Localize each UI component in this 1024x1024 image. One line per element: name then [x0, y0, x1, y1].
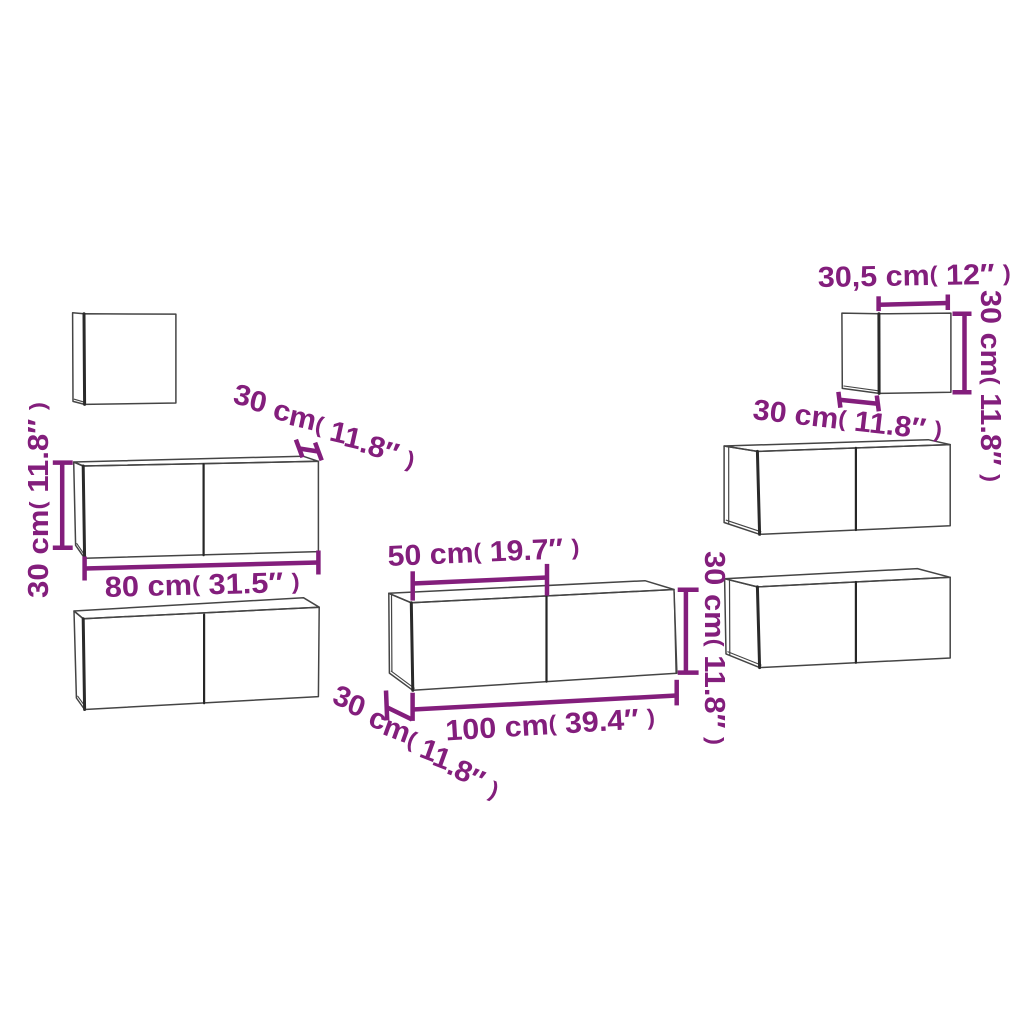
- svg-text:30 cm( 11.8″ ): 30 cm( 11.8″ ): [974, 290, 1006, 482]
- svg-text:80 cm( 31.5″ ): 80 cm( 31.5″ ): [104, 567, 300, 604]
- svg-text:30,5 cm( 12″ ): 30,5 cm( 12″ ): [818, 259, 1012, 294]
- svg-text:30 cm( 11.8″ ): 30 cm( 11.8″ ): [23, 402, 55, 598]
- svg-text:30 cm( 11.8″ ): 30 cm( 11.8″ ): [698, 551, 730, 745]
